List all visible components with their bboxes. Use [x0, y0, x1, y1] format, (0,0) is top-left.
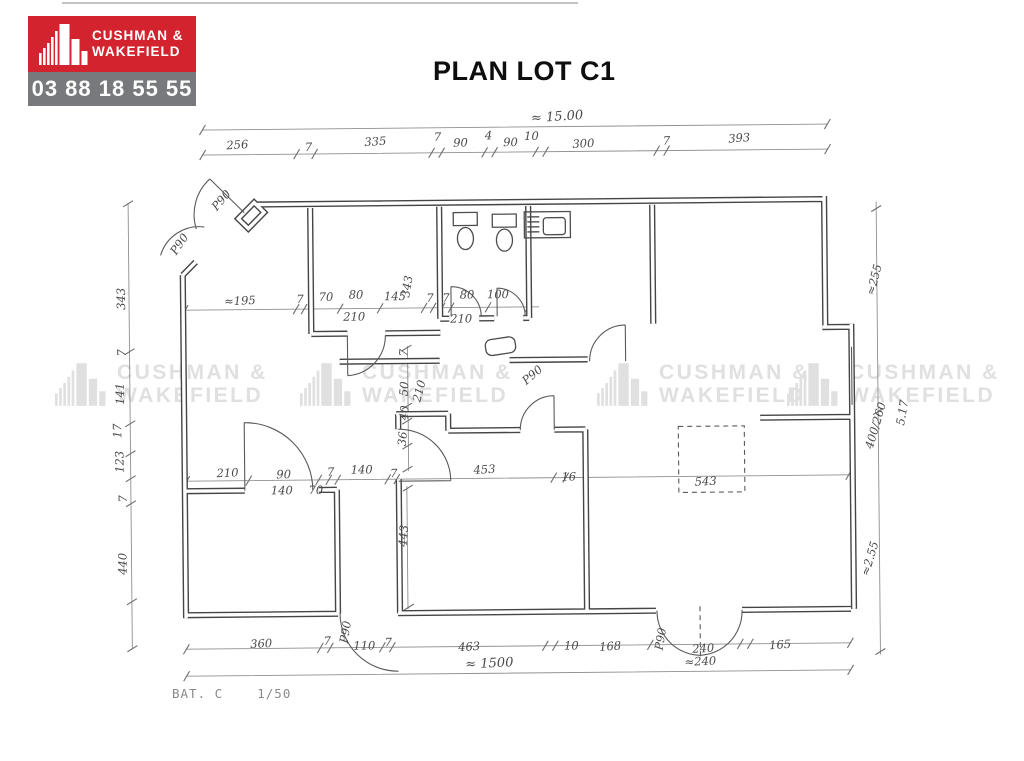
dimension-label: 140	[271, 483, 293, 497]
walls	[182, 196, 854, 618]
dimension-label: 343	[398, 274, 415, 298]
dimension-label: 443	[395, 524, 411, 548]
dimension-label: 123	[112, 451, 126, 473]
dimension-label: P90	[518, 362, 545, 388]
dimension-label: 7	[114, 348, 128, 356]
dimension-label: 90	[503, 135, 518, 149]
dimension-label: 256	[225, 137, 249, 152]
dimension-label: 210	[342, 309, 365, 323]
dimension-label: 140	[351, 462, 373, 476]
dimension-label: P90	[651, 627, 669, 652]
floor-plan-drawing: 2567335790490103007393≈ 15.0034371411712…	[0, 0, 1024, 761]
dimension-label: 7	[390, 466, 398, 480]
dimension-label: 70	[319, 290, 334, 304]
dimension-label: P90	[336, 620, 354, 645]
dimension-label: 393	[728, 130, 751, 146]
dimension-label: ≈195	[224, 293, 256, 308]
dimension-label: 16	[561, 469, 576, 483]
dimension-label: 7	[327, 465, 335, 479]
dimension-label: 7	[305, 140, 313, 154]
sink-basin	[543, 218, 565, 235]
dimension-label: 7	[442, 291, 450, 305]
dimension-label: 141	[113, 383, 127, 405]
dimension-label: 70	[308, 483, 323, 497]
floor-plan-page: CUSHMAN & WAKEFIELD 03 88 18 55 55 PLAN …	[0, 0, 1024, 761]
toilet-tank	[453, 212, 477, 225]
dimension-label: 40	[397, 405, 412, 422]
dimension-label: 7	[296, 292, 304, 306]
dimension-label: 100	[487, 287, 509, 301]
dimension-label: 7	[396, 348, 411, 357]
dimension-label: 335	[364, 134, 387, 149]
washbasin	[484, 336, 516, 356]
dimension-label: 300	[572, 136, 595, 151]
dimension-label: 210	[215, 465, 239, 480]
dimension-label: 165	[769, 637, 792, 652]
door-swings	[160, 173, 855, 674]
dimension-label: 50	[396, 381, 411, 397]
dimension-label: 400/260	[862, 401, 889, 452]
dimension-label: 360	[250, 636, 273, 651]
dimension-label: P90	[167, 231, 192, 258]
dimension-labels: 2567335790490103007393≈ 15.0034371411712…	[107, 105, 914, 676]
dimension-lines	[127, 124, 880, 677]
dimension-label: 210	[409, 379, 428, 405]
dimension-label: 210	[449, 311, 472, 325]
dimension-label: 80	[460, 287, 475, 301]
toilet-bowl	[496, 229, 512, 251]
dimension-label: 4	[484, 128, 492, 142]
dimension-label: 7	[434, 130, 442, 144]
dimension-label: 36	[395, 431, 410, 447]
dimension-label: ≈ 1500	[465, 655, 514, 672]
dimension-label: 5.17	[893, 398, 911, 426]
dimension-label: ≈2.55	[858, 540, 881, 578]
dimension-label: ≈255	[863, 263, 884, 297]
dimension-label: 7	[385, 635, 393, 649]
dimension-label: 7	[426, 291, 434, 305]
dimension-label: ≈ 15.00	[531, 108, 584, 126]
dimension-label: 17	[110, 423, 124, 438]
dimension-label: 90	[453, 135, 468, 149]
dimension-label: 440	[115, 553, 129, 576]
dimension-label: 343	[114, 288, 128, 310]
dimension-label: 80	[349, 287, 364, 301]
wc-fixtures	[453, 212, 571, 357]
toilet-bowl	[457, 227, 473, 249]
dimension-label: P90	[208, 187, 234, 214]
dimension-label: 7	[324, 634, 332, 648]
dimension-label: 10	[524, 129, 539, 143]
dimension-label: 453	[472, 462, 496, 477]
dimension-label: 10	[564, 638, 579, 652]
dimension-label: 7	[116, 494, 130, 502]
dimension-label: 7	[663, 134, 671, 148]
toilet-tank	[492, 214, 516, 227]
dimension-label: ≈240	[684, 654, 716, 669]
dimension-label: 168	[599, 638, 622, 653]
walls-inner	[182, 196, 854, 618]
dimension-label: 463	[457, 639, 481, 654]
dimension-label: 90	[276, 467, 291, 481]
dimension-label: 543	[694, 474, 717, 489]
dimension-label: 110	[353, 638, 375, 652]
